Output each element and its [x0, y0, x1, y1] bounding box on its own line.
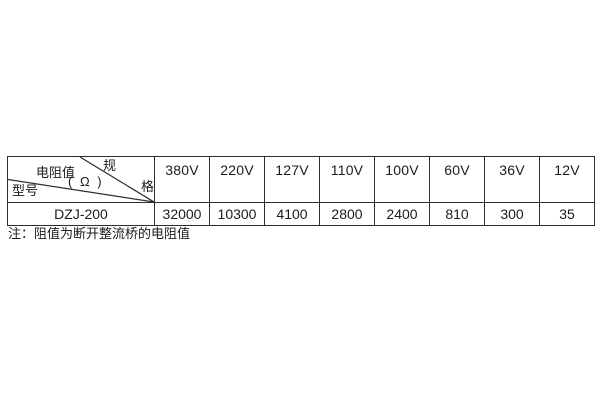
value-cell-110v: 2800	[320, 203, 375, 226]
column-header-220v: 220V	[210, 157, 265, 203]
column-header-127v: 127V	[265, 157, 320, 203]
value-cell-127v: 4100	[265, 203, 320, 226]
header-row: 规 格 电阻值 ( Ω ) 型号 380V 220V 127V 110V 100…	[8, 157, 595, 203]
corner-label-spec-top: 规	[103, 159, 116, 173]
corner-label-resistance-unit: ( Ω )	[68, 175, 104, 189]
model-cell: DZJ-200	[8, 203, 155, 226]
corner-label-spec-bottom: 格	[141, 180, 154, 194]
table-row: DZJ-200 32000 10300 4100 2800 2400 810 3…	[8, 203, 595, 226]
column-header-100v: 100V	[375, 157, 430, 203]
value-cell-12v: 35	[540, 203, 595, 226]
corner-label-model: 型号	[12, 184, 38, 198]
column-header-36v: 36V	[485, 157, 540, 203]
value-cell-60v: 810	[430, 203, 485, 226]
column-header-60v: 60V	[430, 157, 485, 203]
column-header-380v: 380V	[155, 157, 210, 203]
corner-header-cell: 规 格 电阻值 ( Ω ) 型号	[8, 157, 155, 203]
value-cell-100v: 2400	[375, 203, 430, 226]
value-cell-380v: 32000	[155, 203, 210, 226]
note-text: 注：阻值为断开整流桥的电阻值	[8, 226, 190, 241]
column-header-12v: 12V	[540, 157, 595, 203]
value-cell-220v: 10300	[210, 203, 265, 226]
value-cell-36v: 300	[485, 203, 540, 226]
page: 规 格 电阻值 ( Ω ) 型号 380V 220V 127V 110V 100…	[0, 0, 600, 400]
spec-table: 规 格 电阻值 ( Ω ) 型号 380V 220V 127V 110V 100…	[7, 156, 595, 226]
column-header-110v: 110V	[320, 157, 375, 203]
